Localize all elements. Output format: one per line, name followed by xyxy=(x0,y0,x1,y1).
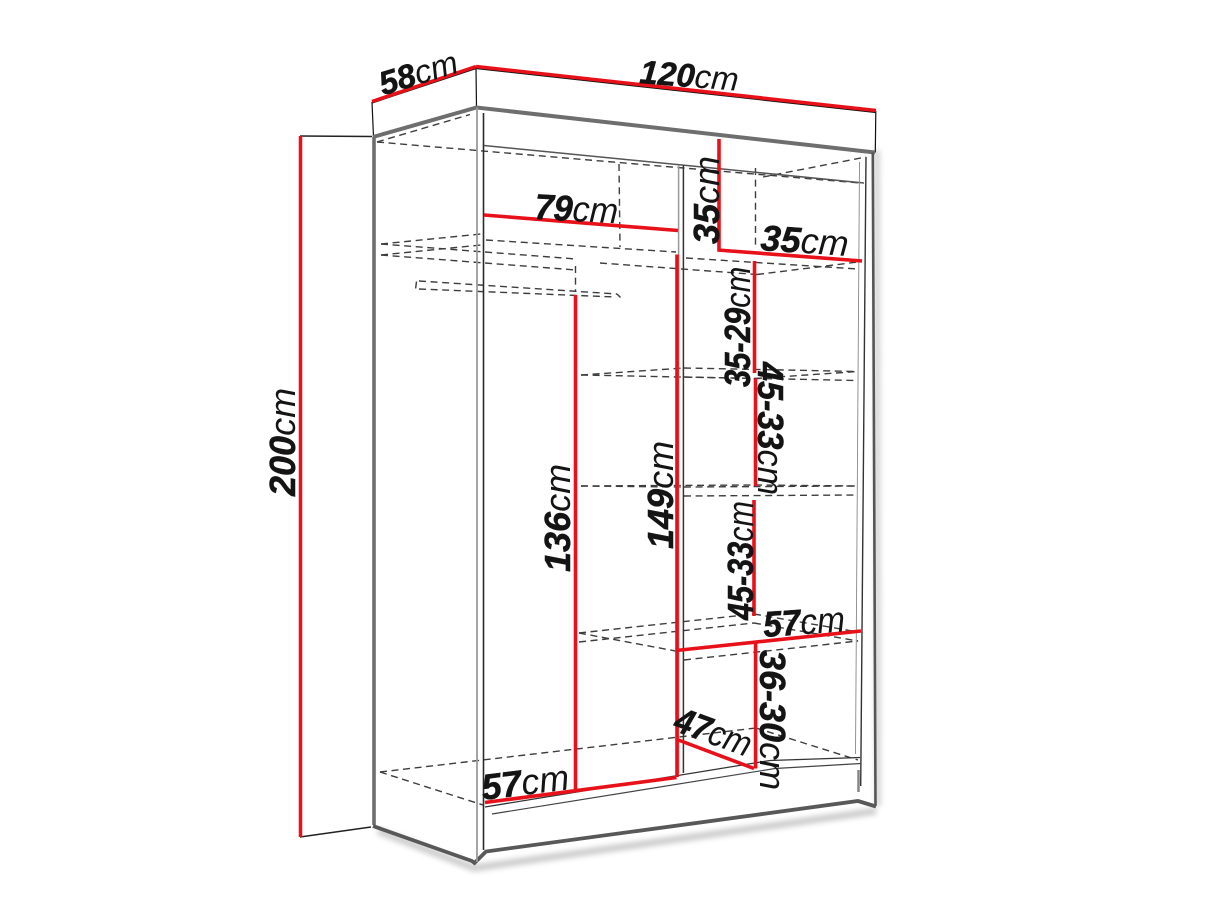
svg-text:45-33cm: 45-33cm xyxy=(750,361,790,495)
svg-text:45-33cm: 45-33cm xyxy=(722,501,762,621)
svg-text:57cm: 57cm xyxy=(762,600,846,645)
svg-text:136cm: 136cm xyxy=(537,464,578,572)
svg-text:149cm: 149cm xyxy=(640,441,681,549)
svg-text:200cm: 200cm xyxy=(262,388,303,497)
svg-text:35cm: 35cm xyxy=(686,156,727,244)
svg-text:35cm: 35cm xyxy=(759,217,850,264)
svg-text:120cm: 120cm xyxy=(638,53,740,98)
svg-text:79cm: 79cm xyxy=(534,187,620,231)
svg-text:36-30cm: 36-30cm xyxy=(752,650,793,790)
